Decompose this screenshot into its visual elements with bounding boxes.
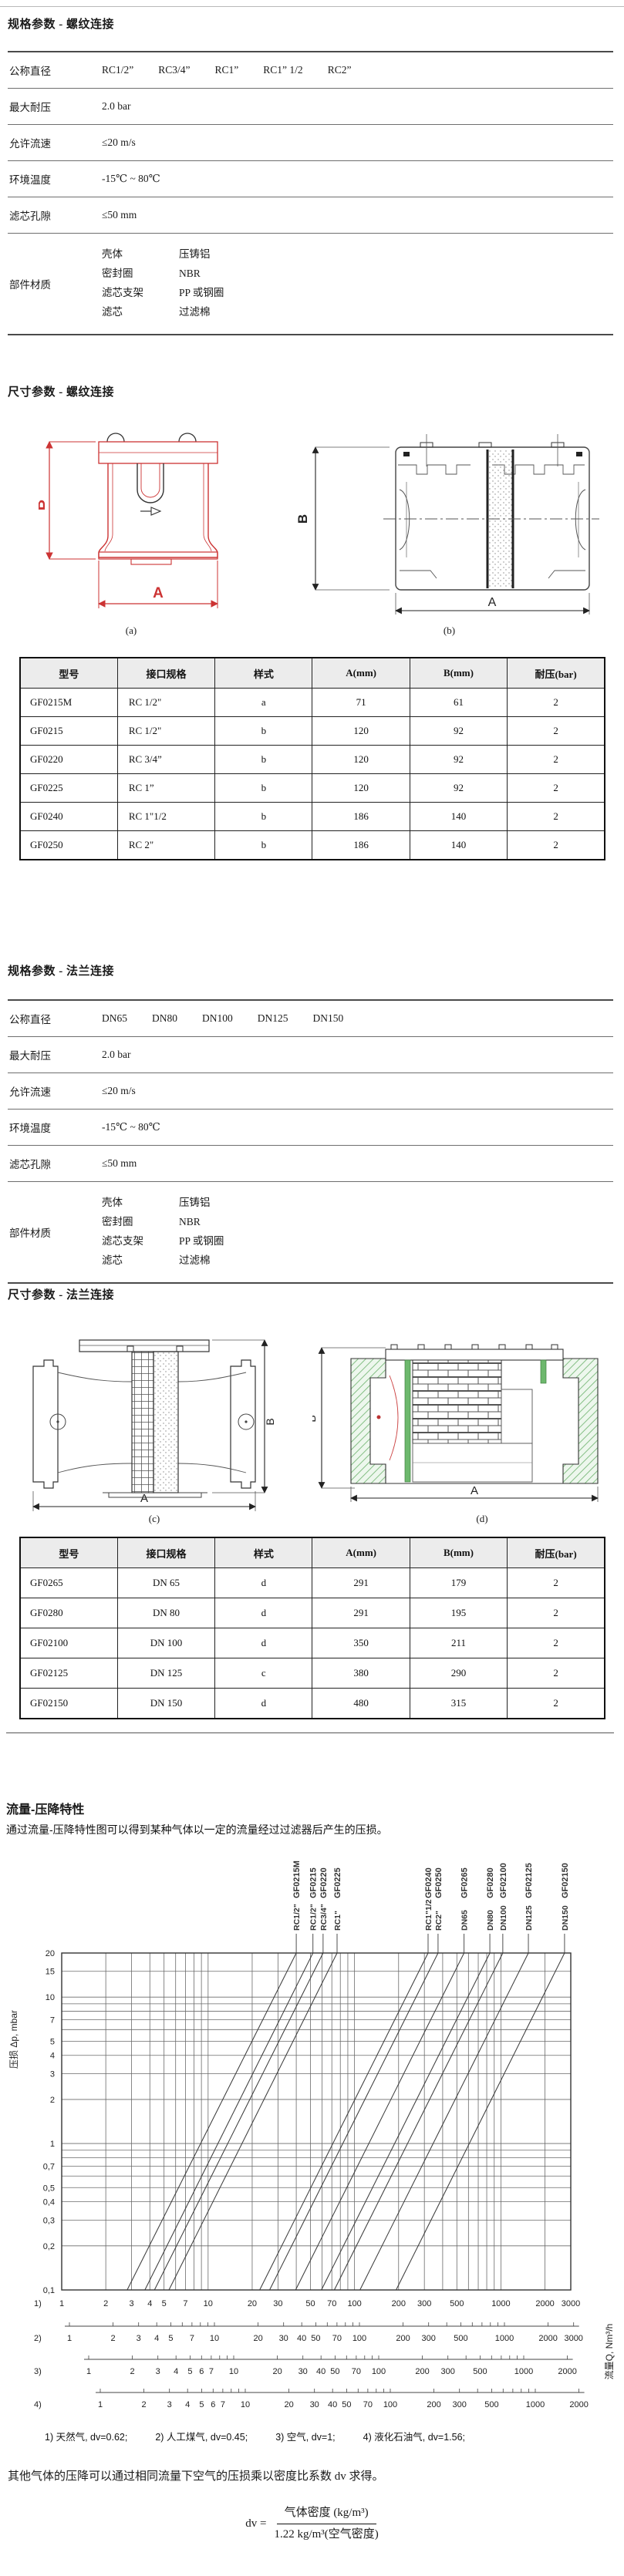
x-tick-label: 100 bbox=[383, 2400, 397, 2409]
x-tick-label: 500 bbox=[484, 2400, 498, 2409]
table-cell: 2 bbox=[508, 689, 605, 717]
table-row: GF02150DN 150d4803152 bbox=[20, 1689, 605, 1719]
series-model-label: GF0250 bbox=[434, 1867, 444, 1898]
series-model-label: GF0220 bbox=[319, 1867, 329, 1898]
table-cell: 61 bbox=[410, 689, 507, 717]
table-cell: 350 bbox=[312, 1628, 410, 1658]
spec-row: 环境温度-15℃ ~ 80℃ bbox=[8, 1110, 613, 1146]
series-model-label: GF02150 bbox=[561, 1863, 570, 1898]
section-heading-spec-thread: 规格参数 - 螺纹连接 bbox=[8, 15, 114, 32]
x-tick-label: 1000 bbox=[491, 2299, 510, 2308]
table-cell: DN 80 bbox=[117, 1598, 214, 1628]
spec-row-value: ≤50 mm bbox=[102, 209, 613, 221]
table-cell: 140 bbox=[410, 831, 507, 860]
series-model-label: GF0280 bbox=[486, 1867, 495, 1898]
x-tick-label: 500 bbox=[473, 2367, 487, 2376]
x-tick-label: 100 bbox=[352, 2334, 366, 2343]
formula-denominator: 1.22 kg/m³(空气密度) bbox=[274, 2524, 378, 2544]
spec-row-value: -15℃ ~ 80℃ bbox=[102, 173, 613, 185]
y-tick-label: 0,7 bbox=[43, 2163, 55, 2172]
x-tick-label: 3 bbox=[137, 2334, 141, 2343]
x-tick-label: 2 bbox=[142, 2400, 147, 2409]
spec-row-label: 允许流速 bbox=[8, 135, 102, 150]
x-tick-label: 50 bbox=[311, 2334, 320, 2343]
x-tick-label: 500 bbox=[450, 2299, 464, 2308]
section-heading-dims-flange: 尺寸参数 - 法兰连接 bbox=[8, 1286, 114, 1302]
x-scale-id: 1) bbox=[34, 2299, 42, 2308]
x-tick-label: 2000 bbox=[538, 2334, 557, 2343]
table-cell: GF0225 bbox=[20, 774, 117, 803]
spec-row-value: ≤20 m/s bbox=[102, 1085, 613, 1097]
x-tick-label: 100 bbox=[372, 2367, 386, 2376]
figure-d-flanged-colored-section-view: B A bbox=[312, 1335, 602, 1507]
spec-row-label: 环境温度 bbox=[8, 171, 102, 187]
table-cell: 380 bbox=[312, 1658, 410, 1689]
spec-table-thread: 公称直径RC1/2”RC3/4”RC1”RC1” 1/2RC2”最大耐压2.0 … bbox=[8, 51, 613, 335]
series-size-label: RC3/4" bbox=[319, 1904, 329, 1931]
table-cell: 2 bbox=[508, 1598, 605, 1628]
spec-row: 允许流速≤20 m/s bbox=[8, 125, 613, 161]
table-row: GF0215MRC 1/2"a71612 bbox=[20, 689, 605, 717]
table-cell: 2 bbox=[508, 1568, 605, 1598]
table-header-cell: 型号 bbox=[20, 658, 117, 689]
spec-row-label: 滤芯孔隙 bbox=[8, 1156, 102, 1171]
x-scale-id: 4) bbox=[34, 2400, 42, 2409]
table-row: GF0220RC 3/4”b120922 bbox=[20, 746, 605, 774]
density-ratio-note: 其他气体的压降可以通过相同流量下空气的压损乘以密度比系数 dv 求得。 bbox=[8, 2467, 384, 2483]
table-row: GF0215RC 1/2"b120922 bbox=[20, 717, 605, 746]
x-tick-label: 30 bbox=[299, 2367, 308, 2376]
table-header-cell: 耐压(bar) bbox=[508, 1537, 605, 1568]
x-tick-label: 3 bbox=[156, 2367, 160, 2376]
x-tick-label: 3 bbox=[130, 2299, 134, 2308]
x-tick-label: 2 bbox=[103, 2299, 108, 2308]
dim-label-a: A bbox=[488, 596, 497, 609]
table-header-cell: B(mm) bbox=[410, 1537, 507, 1568]
table-cell: DN 65 bbox=[117, 1568, 214, 1598]
table-cell: b bbox=[215, 746, 312, 774]
x-tick-label: 30 bbox=[310, 2400, 319, 2409]
x-tick-label: 70 bbox=[327, 2299, 336, 2308]
y-tick-label: 20 bbox=[46, 1949, 55, 1958]
x-tick-label: 3 bbox=[167, 2400, 172, 2409]
spec-row-label: 部件材质 bbox=[8, 1224, 102, 1240]
spec-row-value: 2.0 bar bbox=[102, 100, 613, 113]
formula-fraction: 气体密度 (kg/m³) 1.22 kg/m³(空气密度) bbox=[274, 2504, 378, 2543]
x-tick-label: 2 bbox=[130, 2367, 135, 2376]
x-tick-label: 40 bbox=[328, 2400, 337, 2409]
x-tick-label: 70 bbox=[363, 2400, 373, 2409]
table-cell: 71 bbox=[312, 689, 410, 717]
footnote-item: 4) 液化石油气, dv=1.56; bbox=[363, 2429, 465, 2443]
x-tick-label: 100 bbox=[347, 2299, 361, 2308]
spec-row: 公称直径RC1/2”RC3/4”RC1”RC1” 1/2RC2” bbox=[8, 52, 613, 89]
x-tick-label: 300 bbox=[441, 2367, 455, 2376]
x-tick-label: 200 bbox=[427, 2400, 440, 2409]
table-cell: RC 1/2" bbox=[117, 717, 214, 746]
table-cell: 120 bbox=[312, 774, 410, 803]
x-tick-label: 5 bbox=[187, 2367, 192, 2376]
x-tick-label: 10 bbox=[204, 2299, 213, 2308]
y-tick-label: 10 bbox=[46, 1993, 55, 2002]
table-cell: 2 bbox=[508, 1658, 605, 1689]
table-cell: GF02125 bbox=[20, 1658, 117, 1689]
series-size-label: DN125 bbox=[524, 1905, 534, 1931]
table-row: GF0240RC 1"1/2b1861402 bbox=[20, 803, 605, 831]
table-header-cell: 耐压(bar) bbox=[508, 658, 605, 689]
table-cell: 290 bbox=[410, 1658, 507, 1689]
table-cell: RC 1” bbox=[117, 774, 214, 803]
x-tick-label: 2 bbox=[111, 2334, 116, 2343]
x-tick-label: 6 bbox=[199, 2367, 204, 2376]
x-tick-label: 200 bbox=[392, 2299, 406, 2308]
series-model-label: GF02125 bbox=[524, 1863, 534, 1898]
table-cell: 315 bbox=[410, 1689, 507, 1719]
series-size-label: DN80 bbox=[486, 1910, 495, 1931]
y-tick-label: 0,3 bbox=[43, 2216, 55, 2225]
spec-row-label: 允许流速 bbox=[8, 1083, 102, 1099]
x-scale-id: 3) bbox=[34, 2367, 42, 2376]
table-cell: RC 2" bbox=[117, 831, 214, 860]
x-tick-label: 10 bbox=[229, 2367, 238, 2376]
table-cell: 2 bbox=[508, 774, 605, 803]
x-tick-label: 7 bbox=[221, 2400, 225, 2409]
x-tick-label: 200 bbox=[415, 2367, 429, 2376]
datasheet-page: 规格参数 - 螺纹连接 公称直径RC1/2”RC3/4”RC1”RC1” 1/2… bbox=[0, 0, 624, 2576]
x-tick-label: 300 bbox=[453, 2400, 467, 2409]
table-cell: GF0220 bbox=[20, 746, 117, 774]
series-size-label: RC1/2" bbox=[292, 1904, 302, 1931]
spec-row-value: ≤20 m/s bbox=[102, 136, 613, 149]
series-model-label: GF02100 bbox=[499, 1863, 508, 1898]
x-tick-label: 20 bbox=[272, 2367, 282, 2376]
figure-d-caption: (d) bbox=[343, 1513, 621, 1525]
table-cell: b bbox=[215, 717, 312, 746]
table-header-row: 型号接口规格样式A(mm)B(mm)耐压(bar) bbox=[20, 1537, 605, 1568]
y-tick-label: 0,2 bbox=[43, 2242, 55, 2251]
table-cell: DN 150 bbox=[117, 1689, 214, 1719]
table-header-cell: B(mm) bbox=[410, 658, 507, 689]
y-tick-label: 7 bbox=[50, 2016, 55, 2025]
spec-row-value: ≤50 mm bbox=[102, 1157, 613, 1170]
spec-table-flange: 公称直径DN65DN80DN100DN125DN150最大耐压2.0 bar允许… bbox=[8, 999, 613, 1284]
spec-row-label: 公称直径 bbox=[8, 62, 102, 78]
spec-row-label: 公称直径 bbox=[8, 1011, 102, 1026]
dimension-table-threaded: 型号接口规格样式A(mm)B(mm)耐压(bar)GF0215MRC 1/2"a… bbox=[19, 657, 605, 860]
table-cell: b bbox=[215, 803, 312, 831]
figure-b-caption: (b) bbox=[297, 625, 602, 637]
table-cell: RC 3/4” bbox=[117, 746, 214, 774]
table-row: GF0250RC 2"b1861402 bbox=[20, 831, 605, 860]
x-tick-label: 5 bbox=[199, 2400, 204, 2409]
x-tick-label: 30 bbox=[273, 2299, 282, 2308]
section-heading-spec-flange: 规格参数 - 法兰连接 bbox=[8, 962, 114, 978]
table-header-cell: A(mm) bbox=[312, 1537, 410, 1568]
material-pair: 滤芯支架PP 或钢圈 bbox=[102, 284, 613, 303]
dim-label-b: B bbox=[39, 500, 49, 510]
y-tick-label: 0,5 bbox=[43, 2184, 55, 2193]
spec-row: 部件材质壳体压铸铝密封圈NBR滤芯支架PP 或钢圈滤芯过滤棉 bbox=[8, 1182, 613, 1282]
x-tick-label: 1 bbox=[59, 2299, 64, 2308]
table-cell: GF02100 bbox=[20, 1628, 117, 1658]
formula-lhs: dv = bbox=[245, 2517, 266, 2531]
x-tick-label: 50 bbox=[330, 2367, 339, 2376]
x-tick-label: 20 bbox=[248, 2299, 257, 2308]
table-cell: 480 bbox=[312, 1689, 410, 1719]
x-tick-label: 70 bbox=[332, 2334, 342, 2343]
table-cell: b bbox=[215, 774, 312, 803]
spec-row: 部件材质壳体压铸铝密封圈NBR滤芯支架PP 或钢圈滤芯过滤棉 bbox=[8, 234, 613, 334]
table-cell: 2 bbox=[508, 831, 605, 860]
table-header-cell: 样式 bbox=[215, 658, 312, 689]
table-cell: GF02150 bbox=[20, 1689, 117, 1719]
dim-label-a: A bbox=[471, 1484, 478, 1497]
x-tick-label: 1000 bbox=[526, 2400, 545, 2409]
table-cell: GF0215M bbox=[20, 689, 117, 717]
top-divider bbox=[0, 6, 624, 7]
series-size-label: RC1"1/2 bbox=[424, 1899, 433, 1931]
footnote-item: 3) 空气, dv=1; bbox=[275, 2429, 335, 2443]
table-cell: 2 bbox=[508, 1628, 605, 1658]
x-tick-label: 2000 bbox=[558, 2367, 576, 2376]
table-cell: 140 bbox=[410, 803, 507, 831]
x-tick-label: 4 bbox=[154, 2334, 159, 2343]
table-cell: 291 bbox=[312, 1568, 410, 1598]
dimension-table-flanged: 型号接口规格样式A(mm)B(mm)耐压(bar)GF0265DN 65d291… bbox=[19, 1537, 605, 1719]
x-tick-label: 3000 bbox=[562, 2299, 580, 2308]
material-pair: 壳体压铸铝 bbox=[102, 1194, 613, 1213]
x-tick-label: 50 bbox=[342, 2400, 351, 2409]
table-cell: 195 bbox=[410, 1598, 507, 1628]
y-tick-label: 0,4 bbox=[43, 2198, 55, 2207]
y-axis-label: 压损 Δp, mbar bbox=[8, 2010, 19, 2069]
spec-row-value: 壳体压铸铝密封圈NBR滤芯支架PP 或钢圈滤芯过滤棉 bbox=[102, 245, 613, 322]
table-cell: 186 bbox=[312, 831, 410, 860]
x-tick-label: 200 bbox=[396, 2334, 410, 2343]
table-header-cell: A(mm) bbox=[312, 658, 410, 689]
x-tick-label: 3000 bbox=[564, 2334, 582, 2343]
series-size-label: DN100 bbox=[499, 1905, 508, 1931]
y-tick-label: 4 bbox=[50, 2052, 55, 2061]
spec-row-label: 滤芯孔隙 bbox=[8, 207, 102, 223]
table-cell: 2 bbox=[508, 1689, 605, 1719]
spec-row-label: 部件材质 bbox=[8, 276, 102, 291]
table-header-cell: 接口规格 bbox=[117, 658, 214, 689]
x-tick-label: 500 bbox=[454, 2334, 467, 2343]
x-tick-label: 40 bbox=[297, 2334, 306, 2343]
x-tick-label: 5 bbox=[162, 2299, 167, 2308]
material-pair: 密封圈NBR bbox=[102, 1213, 613, 1232]
x-tick-label: 70 bbox=[352, 2367, 361, 2376]
figure-a-caption: (a) bbox=[39, 625, 224, 637]
flow-description: 通过流量-压降特性图可以得到某种气体以一定的流量经过过滤器后产生的压损。 bbox=[6, 1822, 388, 1837]
table-header-cell: 接口规格 bbox=[117, 1537, 214, 1568]
x-scale-id: 2) bbox=[34, 2334, 42, 2343]
x-tick-label: 1 bbox=[86, 2367, 91, 2376]
material-pair: 滤芯支架PP 或钢圈 bbox=[102, 1232, 613, 1251]
spec-row: 公称直径DN65DN80DN100DN125DN150 bbox=[8, 1001, 613, 1037]
formula-numerator: 气体密度 (kg/m³) bbox=[277, 2504, 376, 2524]
x-tick-label: 2000 bbox=[569, 2400, 588, 2409]
series-size-label: DN65 bbox=[460, 1910, 470, 1931]
material-pair: 密封圈NBR bbox=[102, 264, 613, 284]
chart-footnote: 1) 天然气, dv=0.62;2) 人工煤气, dv=0.45;3) 空气, … bbox=[45, 2429, 465, 2443]
x-tick-label: 1 bbox=[67, 2334, 72, 2343]
y-tick-label: 3 bbox=[50, 2069, 55, 2079]
spec-row-label: 最大耐压 bbox=[8, 1047, 102, 1062]
table-cell: 186 bbox=[312, 803, 410, 831]
table-cell: 211 bbox=[410, 1628, 507, 1658]
y-tick-label: 2 bbox=[50, 2096, 55, 2105]
series-size-label: RC1" bbox=[333, 1911, 342, 1931]
flow-pressure-drop-chart: 2015107543210,70,50,40,30,20,1压损 Δp, mba… bbox=[0, 1843, 624, 2421]
x-tick-label: 7 bbox=[183, 2299, 187, 2308]
table-row: GF0265DN 65d2911792 bbox=[20, 1568, 605, 1598]
x-tick-label: 30 bbox=[279, 2334, 288, 2343]
table-row: GF02100DN 100d3502112 bbox=[20, 1628, 605, 1658]
x-tick-label: 7 bbox=[209, 2367, 214, 2376]
table-cell: 291 bbox=[312, 1598, 410, 1628]
spec-row: 最大耐压2.0 bar bbox=[8, 1037, 613, 1073]
x-tick-label: 300 bbox=[422, 2334, 436, 2343]
table-cell: 2 bbox=[508, 717, 605, 746]
spec-row: 最大耐压2.0 bar bbox=[8, 89, 613, 125]
spec-row-value: DN65DN80DN100DN125DN150 bbox=[102, 1012, 613, 1025]
section-heading-dims-thread: 尺寸参数 - 螺纹连接 bbox=[8, 383, 114, 399]
dim-label-a: A bbox=[153, 585, 164, 601]
x-tick-label: 1000 bbox=[495, 2334, 514, 2343]
material-pair: 滤芯过滤棉 bbox=[102, 303, 613, 322]
table-cell: GF0240 bbox=[20, 803, 117, 831]
figure-c-caption: (c) bbox=[27, 1513, 282, 1525]
x-tick-label: 5 bbox=[168, 2334, 173, 2343]
x-tick-label: 20 bbox=[284, 2400, 293, 2409]
y-tick-label: 1 bbox=[50, 2140, 55, 2149]
x-tick-label: 20 bbox=[253, 2334, 262, 2343]
spec-row: 允许流速≤20 m/s bbox=[8, 1073, 613, 1110]
spec-row-label: 最大耐压 bbox=[8, 99, 102, 114]
table-cell: 120 bbox=[312, 717, 410, 746]
table-cell: RC 1"1/2 bbox=[117, 803, 214, 831]
material-pair: 滤芯过滤棉 bbox=[102, 1251, 613, 1271]
table-cell: 2 bbox=[508, 803, 605, 831]
table-cell: 2 bbox=[508, 746, 605, 774]
x-tick-label: 10 bbox=[210, 2334, 219, 2343]
table-cell: GF0215 bbox=[20, 717, 117, 746]
x-axis-label: 流量Q, Nm³/h bbox=[604, 2324, 615, 2380]
spec-row-value: 2.0 bar bbox=[102, 1049, 613, 1061]
table-cell: 120 bbox=[312, 746, 410, 774]
x-tick-label: 6 bbox=[211, 2400, 215, 2409]
x-tick-label: 2000 bbox=[535, 2299, 554, 2308]
footnote-item: 2) 人工煤气, dv=0.45; bbox=[155, 2429, 248, 2443]
footnote-item: 1) 天然气, dv=0.62; bbox=[45, 2429, 127, 2443]
spec-row: 滤芯孔隙≤50 mm bbox=[8, 197, 613, 234]
series-model-label: GF0265 bbox=[460, 1867, 470, 1898]
table-cell: a bbox=[215, 689, 312, 717]
table-row: GF02125DN 125c3802902 bbox=[20, 1658, 605, 1689]
table-cell: b bbox=[215, 831, 312, 860]
table-cell: DN 100 bbox=[117, 1628, 214, 1658]
series-model-label: GF0215M bbox=[292, 1860, 302, 1898]
section-divider bbox=[6, 1732, 614, 1733]
spec-row-value: RC1/2”RC3/4”RC1”RC1” 1/2RC2” bbox=[102, 64, 613, 76]
spec-row: 环境温度-15℃ ~ 80℃ bbox=[8, 161, 613, 197]
table-cell: GF0280 bbox=[20, 1598, 117, 1628]
series-model-label: GF0225 bbox=[333, 1867, 342, 1898]
table-row: GF0280DN 80d2911952 bbox=[20, 1598, 605, 1628]
spec-row-label: 环境温度 bbox=[8, 1120, 102, 1135]
spec-row-value: -15℃ ~ 80℃ bbox=[102, 1121, 613, 1133]
dim-label-b: B bbox=[264, 1418, 276, 1425]
table-header-cell: 样式 bbox=[215, 1537, 312, 1568]
figure-c-flanged-section-view: A B bbox=[27, 1335, 282, 1513]
table-cell: d bbox=[215, 1568, 312, 1598]
table-row: GF0225RC 1”b120922 bbox=[20, 774, 605, 803]
x-tick-label: 1 bbox=[98, 2400, 103, 2409]
figure-b-threaded-section-view: B A bbox=[297, 420, 602, 622]
dim-label-b: B bbox=[297, 514, 310, 524]
series-model-label: GF0240 bbox=[424, 1867, 433, 1898]
x-tick-label: 40 bbox=[316, 2367, 325, 2376]
table-cell: d bbox=[215, 1689, 312, 1719]
table-cell: 179 bbox=[410, 1568, 507, 1598]
table-cell: 92 bbox=[410, 717, 507, 746]
dim-label-b: B bbox=[312, 1415, 318, 1422]
x-tick-label: 300 bbox=[417, 2299, 431, 2308]
spec-row: 滤芯孔隙≤50 mm bbox=[8, 1146, 613, 1182]
figure-a-threaded-front-view: B A bbox=[39, 420, 224, 622]
x-tick-label: 4 bbox=[147, 2299, 152, 2308]
material-pair: 壳体压铸铝 bbox=[102, 245, 613, 264]
y-tick-label: 5 bbox=[50, 2037, 55, 2046]
x-tick-label: 1000 bbox=[514, 2367, 533, 2376]
series-size-label: RC1/2" bbox=[309, 1904, 319, 1931]
table-cell: 92 bbox=[410, 774, 507, 803]
y-tick-label: 15 bbox=[46, 1968, 55, 1977]
x-tick-label: 50 bbox=[305, 2299, 315, 2308]
dv-formula: dv = 气体密度 (kg/m³) 1.22 kg/m³(空气密度) bbox=[0, 2504, 624, 2543]
table-cell: GF0250 bbox=[20, 831, 117, 860]
x-tick-label: 4 bbox=[185, 2400, 190, 2409]
series-size-label: DN150 bbox=[561, 1905, 570, 1931]
table-cell: GF0265 bbox=[20, 1568, 117, 1598]
x-tick-label: 7 bbox=[190, 2334, 194, 2343]
table-cell: d bbox=[215, 1628, 312, 1658]
dim-label-a: A bbox=[140, 1492, 148, 1505]
table-header-cell: 型号 bbox=[20, 1537, 117, 1568]
table-cell: RC 1/2" bbox=[117, 689, 214, 717]
series-model-label: GF0215 bbox=[309, 1867, 319, 1898]
spec-row-value: 壳体压铸铝密封圈NBR滤芯支架PP 或钢圈滤芯过滤棉 bbox=[102, 1194, 613, 1271]
x-tick-label: 10 bbox=[241, 2400, 250, 2409]
table-header-row: 型号接口规格样式A(mm)B(mm)耐压(bar) bbox=[20, 658, 605, 689]
section-heading-flow: 流量-压降特性 bbox=[6, 1799, 84, 1817]
y-tick-label: 0,1 bbox=[43, 2286, 55, 2295]
series-size-label: RC2" bbox=[434, 1911, 444, 1931]
table-cell: 92 bbox=[410, 746, 507, 774]
table-cell: c bbox=[215, 1658, 312, 1689]
table-cell: d bbox=[215, 1598, 312, 1628]
x-tick-label: 4 bbox=[174, 2367, 178, 2376]
table-cell: DN 125 bbox=[117, 1658, 214, 1689]
